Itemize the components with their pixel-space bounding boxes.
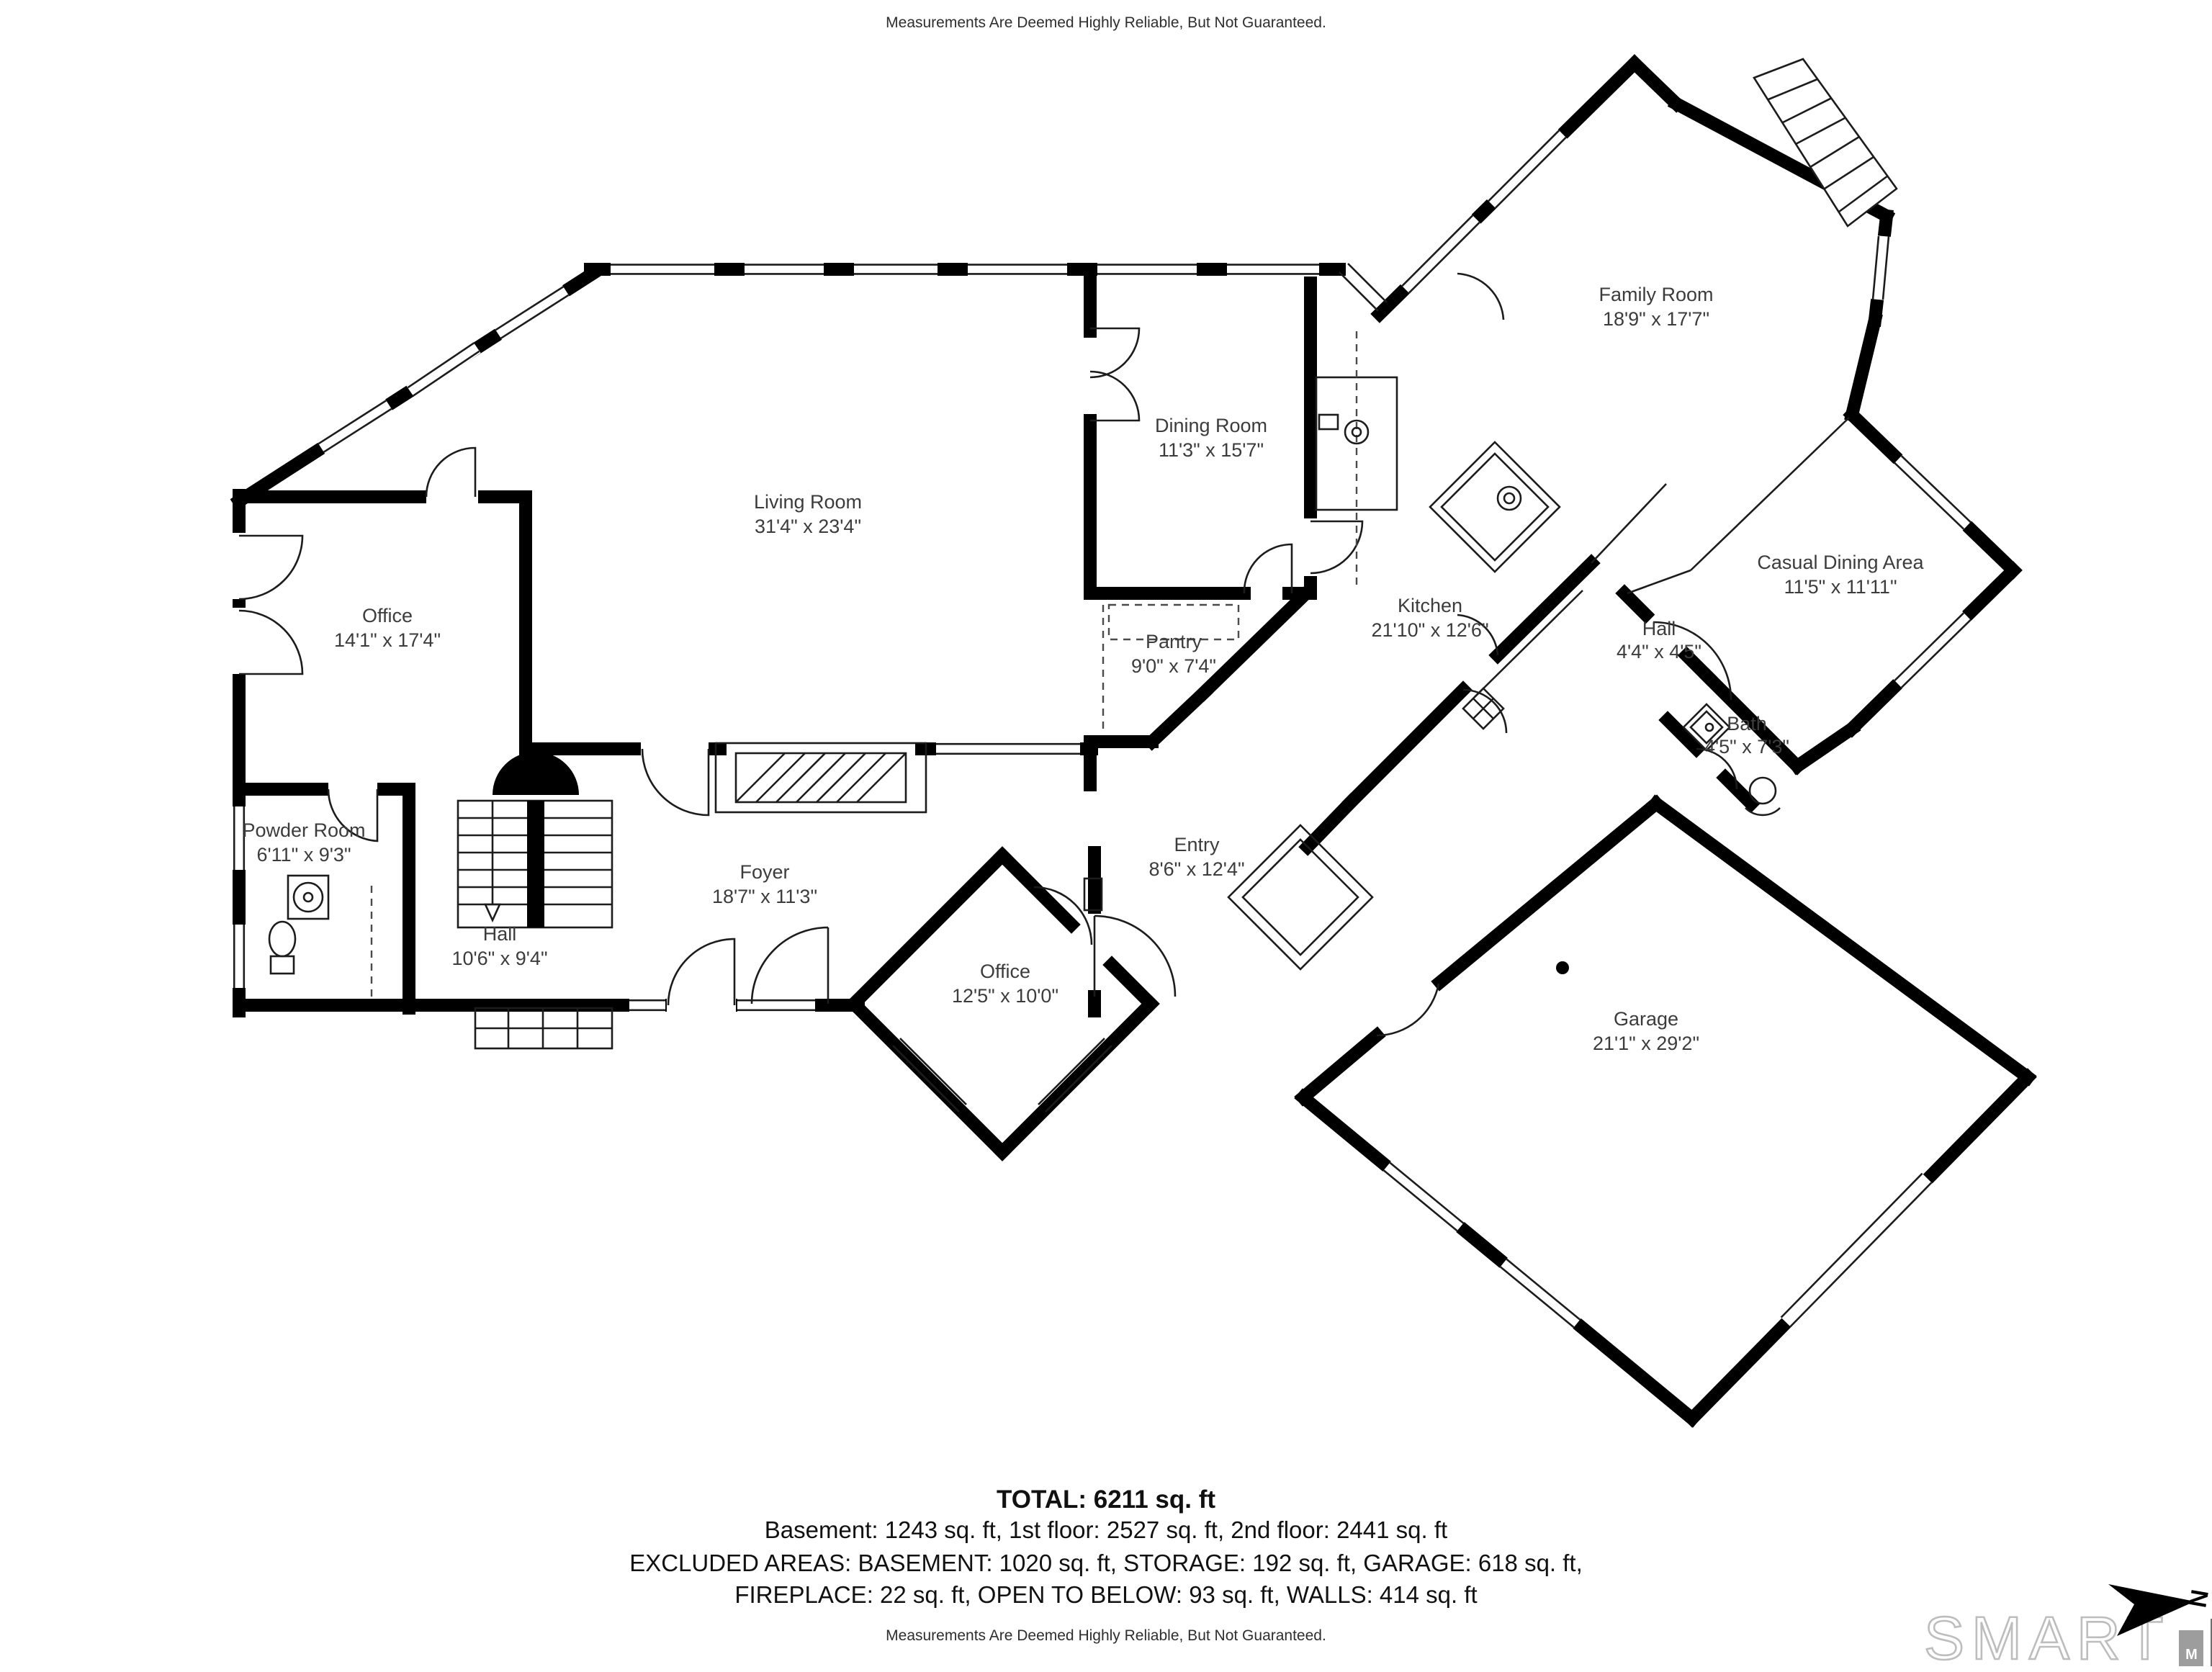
room-name: Dining Room <box>1155 415 1267 436</box>
room-label-garage: Garage 21'1" x 29'2" <box>1593 1008 1699 1054</box>
total-area: TOTAL: 6211 sq. ft <box>0 1483 2212 1515</box>
room-label-pantry: Pantry 9'0" x 7'4" <box>1131 631 1216 677</box>
room-name: Family Room <box>1599 284 1713 305</box>
room-name: Garage <box>1614 1008 1678 1030</box>
room-name: Kitchen <box>1398 595 1462 616</box>
room-dims: 14'1" x 17'4" <box>334 629 441 651</box>
room-labels: Family Room 18'9" x 17'7" Dining Room 11… <box>242 284 1924 1054</box>
room-label-foyer: Foyer 18'7" x 11'3" <box>712 861 817 907</box>
room-label-hall-lower: Hall 10'6" x 9'4" <box>451 923 547 969</box>
room-dims: 11'5" x 11'11" <box>1784 576 1897 598</box>
room-dims: 21'10" x 12'6" <box>1371 619 1488 641</box>
chimney-hatch <box>1754 59 1897 226</box>
room-label-dining-room: Dining Room 11'3" x 15'7" <box>1155 415 1267 461</box>
room-name: Bath <box>1727 713 1767 734</box>
garage-column-dot <box>1556 961 1569 974</box>
area-summary: TOTAL: 6211 sq. ft Basement: 1243 sq. ft… <box>0 1483 2212 1612</box>
room-dims: 11'3" x 15'7" <box>1159 439 1264 461</box>
floor-plan-svg: Family Room 18'9" x 17'7" Dining Room 11… <box>0 0 2212 1659</box>
room-dims: 4'5" x 7'3" <box>1704 736 1789 758</box>
room-dims: 4'4" x 4'5" <box>1617 641 1701 662</box>
room-label-casual-dining: Casual Dining Area 11'5" x 11'11" <box>1757 552 1924 598</box>
fireplace-hatch <box>716 743 926 812</box>
stairs <box>458 752 612 927</box>
north-arrow-icon: N <box>2100 1567 2212 1648</box>
room-label-office-lower: Office 12'5" x 10'0" <box>952 961 1058 1007</box>
room-label-bath: Bath 4'5" x 7'3" <box>1704 713 1789 758</box>
room-label-hall-upper: Hall 4'4" x 4'5" <box>1617 618 1701 662</box>
room-label-family-room: Family Room 18'9" x 17'7" <box>1599 284 1713 330</box>
room-dims: 9'0" x 7'4" <box>1131 655 1216 677</box>
room-name: Entry <box>1174 834 1220 855</box>
room-name: Office <box>362 605 413 626</box>
room-dims: 18'9" x 17'7" <box>1603 308 1709 330</box>
room-name: Powder Room <box>242 819 365 841</box>
room-name: Hall <box>483 923 517 945</box>
room-dims: 12'5" x 10'0" <box>952 985 1058 1007</box>
room-name: Office <box>980 961 1030 982</box>
room-dims: 6'11" x 9'3" <box>256 844 351 866</box>
floor-plan-page: Measurements Are Deemed Highly Reliable,… <box>0 0 2212 1659</box>
room-dims: 31'4" x 23'4" <box>755 516 861 537</box>
room-label-powder-room: Powder Room 6'11" x 9'3" <box>242 819 365 866</box>
room-name: Hall <box>1642 618 1676 639</box>
room-label-office-upper: Office 14'1" x 17'4" <box>334 605 441 651</box>
room-dims: 8'6" x 12'4" <box>1148 858 1244 880</box>
room-name: Casual Dining Area <box>1757 552 1924 573</box>
bottom-disclaimer: Measurements Are Deemed Highly Reliable,… <box>0 1627 2212 1645</box>
room-dims: 21'1" x 29'2" <box>1593 1033 1699 1054</box>
excluded-areas-2: FIREPLACE: 22 sq. ft, OPEN TO BELOW: 93 … <box>0 1580 2212 1612</box>
room-name: Living Room <box>754 491 862 513</box>
room-label-living-room: Living Room 31'4" x 23'4" <box>754 491 862 537</box>
room-dims: 18'7" x 11'3" <box>712 886 817 907</box>
room-name: Pantry <box>1146 631 1202 652</box>
floor-areas: Basement: 1243 sq. ft, 1st floor: 2527 s… <box>0 1515 2212 1547</box>
wall-openings <box>234 130 1971 1327</box>
room-name: Foyer <box>739 861 789 883</box>
room-dims: 10'6" x 9'4" <box>451 948 547 969</box>
excluded-areas-1: EXCLUDED AREAS: BASEMENT: 1020 sq. ft, S… <box>0 1547 2212 1580</box>
north-letter: N <box>2183 1588 2212 1610</box>
room-label-entry: Entry 8'6" x 12'4" <box>1148 834 1244 880</box>
